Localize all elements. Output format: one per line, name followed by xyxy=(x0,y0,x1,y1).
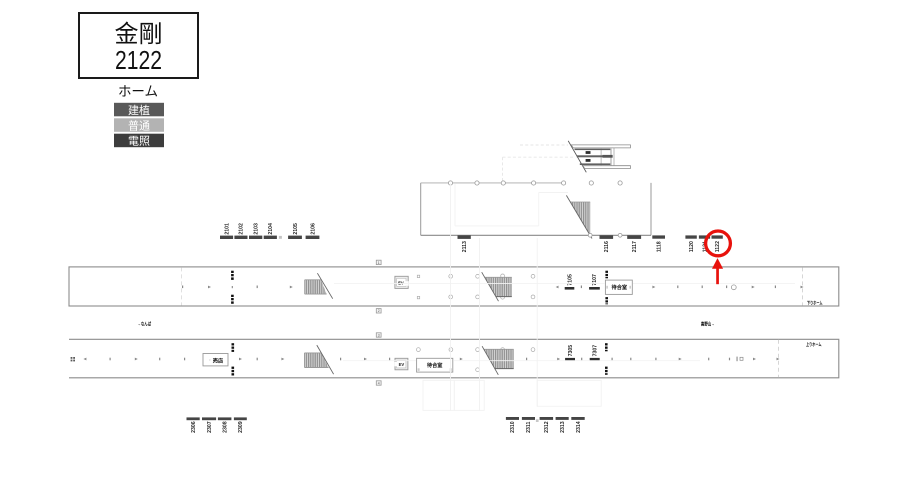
svg-text:2117: 2117 xyxy=(632,241,638,252)
svg-text:下りホーム: 下りホーム xyxy=(807,299,823,306)
svg-text:待合室: 待合室 xyxy=(612,283,628,291)
svg-text:高野山→: 高野山→ xyxy=(701,320,715,327)
svg-text:2311: 2311 xyxy=(526,422,532,433)
svg-text:売店: 売店 xyxy=(213,357,223,365)
svg-text:2314: 2314 xyxy=(576,421,582,433)
svg-text:待合室: 待合室 xyxy=(427,361,443,369)
svg-text:2122: 2122 xyxy=(115,45,162,75)
svg-text:1122: 1122 xyxy=(715,241,721,252)
svg-text:普通: 普通 xyxy=(128,118,150,132)
svg-text:2104: 2104 xyxy=(268,223,274,235)
svg-text:3: 3 xyxy=(378,333,380,337)
svg-text:2102: 2102 xyxy=(239,223,245,235)
svg-text:2113: 2113 xyxy=(462,241,468,252)
svg-text:1118: 1118 xyxy=(656,241,662,252)
svg-text:7307: 7307 xyxy=(593,345,599,357)
svg-text:建植: 建植 xyxy=(128,103,150,117)
svg-text:2105: 2105 xyxy=(293,223,299,235)
svg-text:7305: 7305 xyxy=(568,345,574,357)
svg-text:2310: 2310 xyxy=(510,421,516,433)
svg-text:→なんば: →なんば xyxy=(138,320,152,327)
svg-text:ホーム: ホーム xyxy=(118,84,158,99)
svg-text:金剛: 金剛 xyxy=(115,21,163,48)
svg-text:1: 1 xyxy=(378,261,380,265)
svg-text:2313: 2313 xyxy=(560,421,566,433)
svg-text:2103: 2103 xyxy=(253,223,259,235)
svg-text:2309: 2309 xyxy=(238,421,244,433)
svg-text:2306: 2306 xyxy=(191,421,197,433)
svg-text:4: 4 xyxy=(378,381,380,385)
svg-text:2: 2 xyxy=(378,309,380,313)
svg-text:2116: 2116 xyxy=(604,241,610,252)
svg-text:2312: 2312 xyxy=(544,421,550,433)
svg-text:EV: EV xyxy=(399,362,405,367)
svg-text:2307: 2307 xyxy=(207,421,213,433)
svg-text:上りホーム: 上りホーム xyxy=(806,341,822,348)
svg-text:電照: 電照 xyxy=(128,135,150,148)
svg-text:7107: 7107 xyxy=(592,274,598,286)
svg-text:1120: 1120 xyxy=(689,241,695,252)
svg-text:2308: 2308 xyxy=(222,421,228,433)
svg-text:2106: 2106 xyxy=(310,223,316,235)
svg-text:2101: 2101 xyxy=(224,223,230,235)
svg-text:': ' xyxy=(210,358,211,363)
svg-text:EV: EV xyxy=(398,280,404,285)
svg-text:7105: 7105 xyxy=(567,274,573,286)
